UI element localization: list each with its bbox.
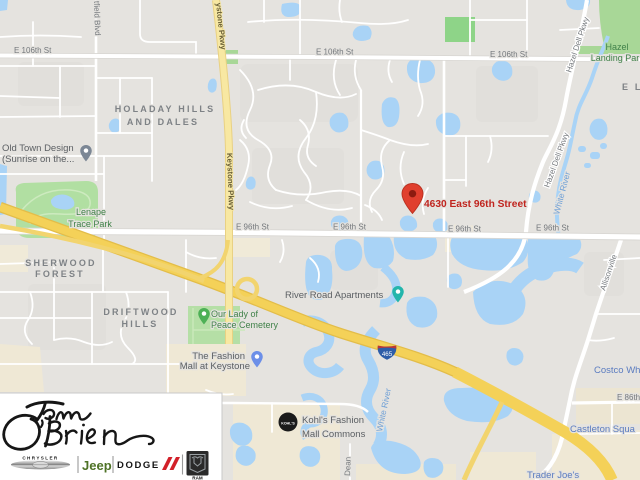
svg-text:Peace Cemetery: Peace Cemetery [211,320,279,330]
svg-text:E 106th St: E 106th St [316,48,354,57]
svg-text:E 106th St: E 106th St [490,50,528,59]
svg-text:Trace Park: Trace Park [68,219,112,229]
svg-text:465: 465 [382,351,393,358]
svg-text:Lenape: Lenape [76,207,106,217]
svg-text:SHERWOOD: SHERWOOD [25,258,96,268]
svg-text:(Sunrise on the...: (Sunrise on the... [2,154,74,165]
svg-text:E 96th St: E 96th St [536,224,570,233]
svg-text:River Road Apartments: River Road Apartments [285,290,383,301]
svg-text:Our Lady of: Our Lady of [211,309,259,319]
svg-text:DRIFTWOOD: DRIFTWOOD [103,307,178,317]
svg-text:Mall Commons: Mall Commons [302,429,366,440]
svg-text:AND DALES: AND DALES [127,117,199,127]
svg-text:Mall at Keystone: Mall at Keystone [180,361,250,372]
svg-text:Hazel: Hazel [605,42,628,52]
svg-text:Castleton Squa: Castleton Squa [570,424,636,435]
svg-text:CHRYSLER: CHRYSLER [22,456,58,461]
svg-text:E 96th St: E 96th St [448,225,482,234]
svg-text:E 96th St: E 96th St [236,223,270,232]
svg-text:DODGE: DODGE [117,460,160,471]
svg-text:E 106th St: E 106th St [14,46,52,55]
svg-text:HILLS: HILLS [122,319,159,329]
svg-text:E L L: E L L [622,82,640,92]
svg-text:KOHL'S: KOHL'S [281,422,295,426]
svg-text:E 86th S: E 86th S [617,393,640,402]
svg-text:Kohl's Fashion: Kohl's Fashion [302,415,364,426]
svg-text:RAM: RAM [192,476,203,480]
svg-text:HOLADAY HILLS: HOLADAY HILLS [115,104,216,114]
svg-text:FOREST: FOREST [35,269,85,279]
svg-text:Costco Wh: Costco Wh [594,365,640,376]
svg-text:4630 East 96th Street: 4630 East 96th Street [424,199,527,210]
svg-text:tfield Blvd: tfield Blvd [92,1,102,36]
svg-text:Old Town Design: Old Town Design [2,143,74,154]
svg-text:Jeep: Jeep [82,458,112,473]
svg-text:E 96th St: E 96th St [333,223,367,232]
svg-text:Landing Par: Landing Par [591,53,640,63]
svg-text:Trader Joe's: Trader Joe's [527,470,579,480]
svg-text:Dean: Dean [343,457,353,476]
